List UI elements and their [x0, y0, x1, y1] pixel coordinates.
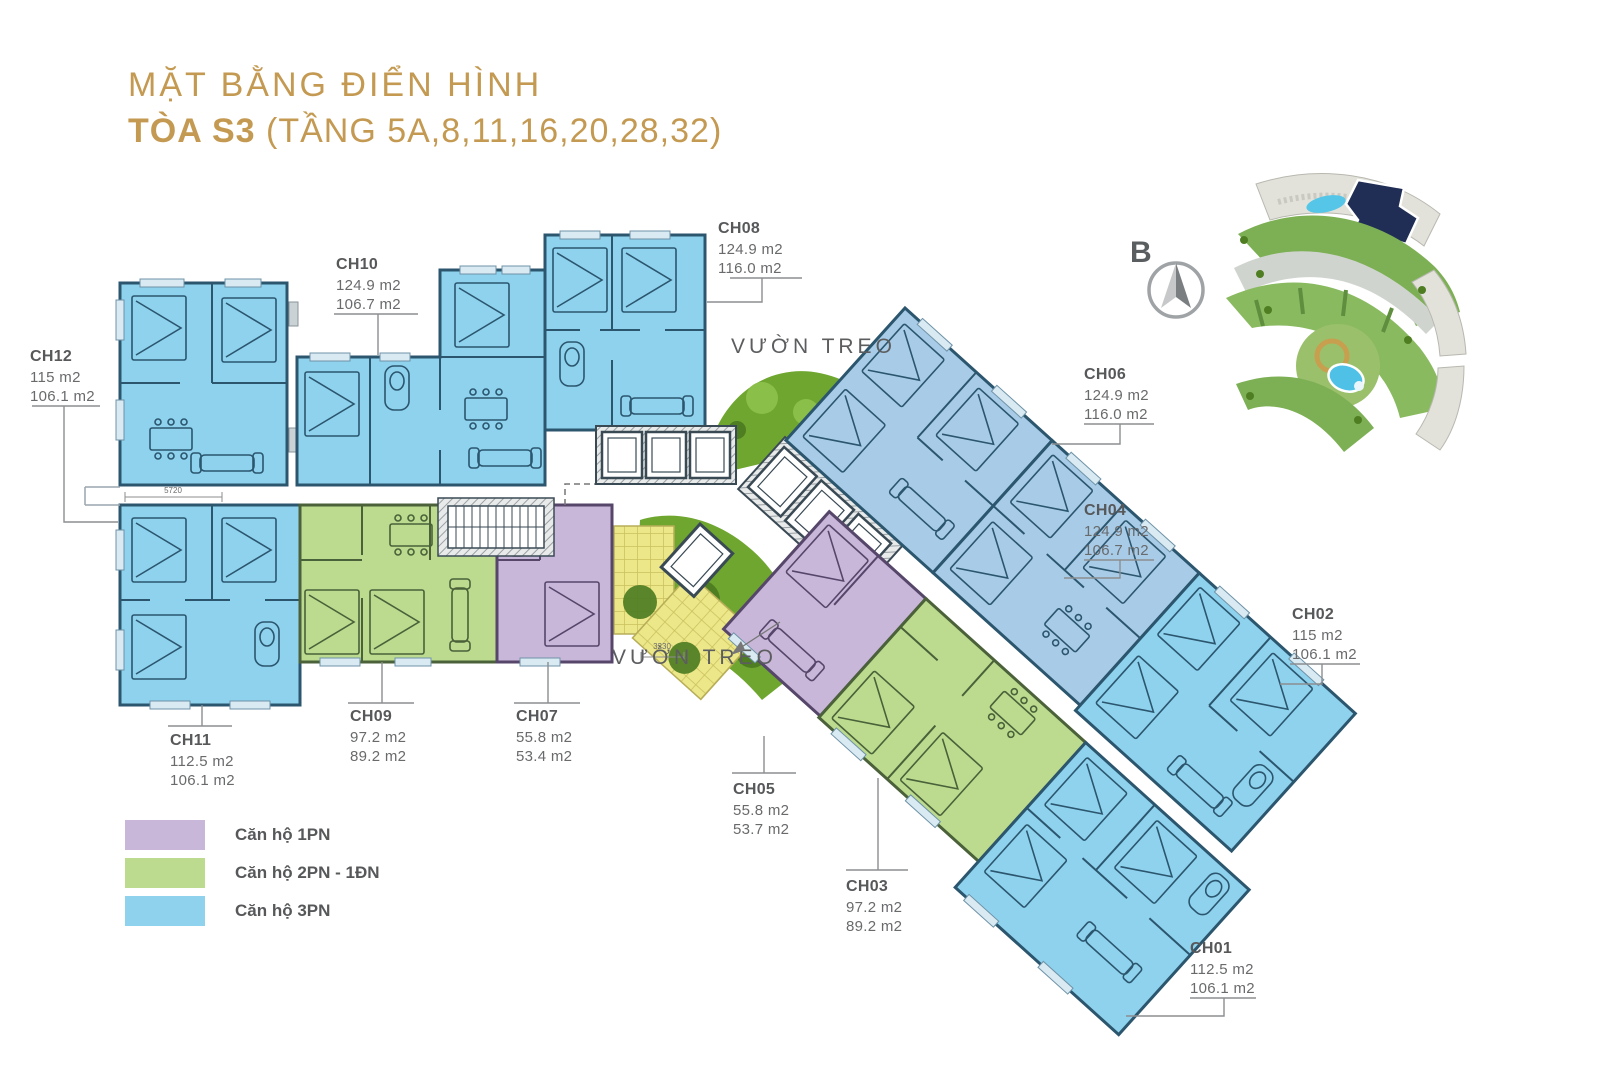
- unit-ch11-shape: [120, 505, 300, 705]
- unit-label-ch03: CH03 97.2 m289.2 m2: [846, 878, 902, 937]
- legend-swatch-1pn: [125, 820, 205, 850]
- ac-ledge: [289, 302, 298, 326]
- garden-top-label: VƯỜN TREO: [731, 335, 896, 358]
- corridor-dashed-mark: [565, 484, 600, 505]
- legend-item-1pn: Căn hộ 1PN: [125, 820, 380, 850]
- unit-label-ch04: CH04 124.9 m2106.7 m2: [1084, 502, 1149, 561]
- legend-swatch-3pn: [125, 896, 205, 926]
- unit-ch10-shape: [297, 270, 545, 485]
- legend-label-1pn: Căn hộ 1PN: [235, 825, 330, 845]
- garden-bottom-label: VƯỜN TREO: [612, 646, 777, 669]
- compass: B: [1130, 236, 1203, 317]
- site-map: [1226, 174, 1466, 452]
- page-title: MẶT BẰNG ĐIỂN HÌNH TÒA S3 (TẦNG 5A,8,11,…: [128, 66, 722, 151]
- legend-swatch-2pn-1dn: [125, 858, 205, 888]
- unit-label-ch10: CH10 124.9 m2106.7 m2: [336, 256, 401, 315]
- legend-label-2pn-1dn: Căn hộ 2PN - 1ĐN: [235, 863, 380, 883]
- unit-ch12-shape: [120, 283, 287, 485]
- stairwell: [438, 498, 554, 556]
- unit-label-ch05: CH05 55.8 m253.7 m2: [733, 781, 789, 840]
- dimension-corridor-value: 5720: [164, 486, 182, 495]
- unit-ch08-shape: [545, 235, 705, 430]
- unit-label-ch08: CH08 124.9 m2116.0 m2: [718, 220, 783, 279]
- legend-item-2pn-1dn: Căn hộ 2PN - 1ĐN: [125, 858, 380, 888]
- compass-north-label: B: [1130, 236, 1152, 269]
- title-building: TÒA S3: [128, 112, 256, 150]
- title-line1: MẶT BẰNG ĐIỂN HÌNH: [128, 66, 722, 105]
- legend: Căn hộ 1PN Căn hộ 2PN - 1ĐN Căn hộ 3PN: [125, 820, 380, 934]
- corridor-left-end: [85, 487, 120, 505]
- elevator-core-main: [596, 426, 736, 484]
- unit-label-ch06: CH06 124.9 m2116.0 m2: [1084, 366, 1149, 425]
- unit-label-ch12: CH12 115 m2106.1 m2: [30, 348, 95, 407]
- unit-label-ch07: CH07 55.8 m253.4 m2: [516, 708, 572, 767]
- unit-label-ch09: CH09 97.2 m289.2 m2: [350, 708, 406, 767]
- unit-label-ch02: CH02 115 m2106.1 m2: [1292, 606, 1357, 665]
- unit-label-ch11: CH11 112.5 m2106.1 m2: [170, 732, 235, 791]
- title-floors: (TẦNG 5A,8,11,16,20,28,32): [256, 112, 723, 150]
- title-line2: TÒA S3 (TẦNG 5A,8,11,16,20,28,32): [128, 112, 722, 151]
- legend-item-3pn: Căn hộ 3PN: [125, 896, 380, 926]
- dimension-corridor: 5720: [125, 486, 222, 502]
- legend-label-3pn: Căn hộ 3PN: [235, 901, 330, 921]
- unit-label-ch01: CH01 112.5 m2106.1 m2: [1190, 940, 1255, 999]
